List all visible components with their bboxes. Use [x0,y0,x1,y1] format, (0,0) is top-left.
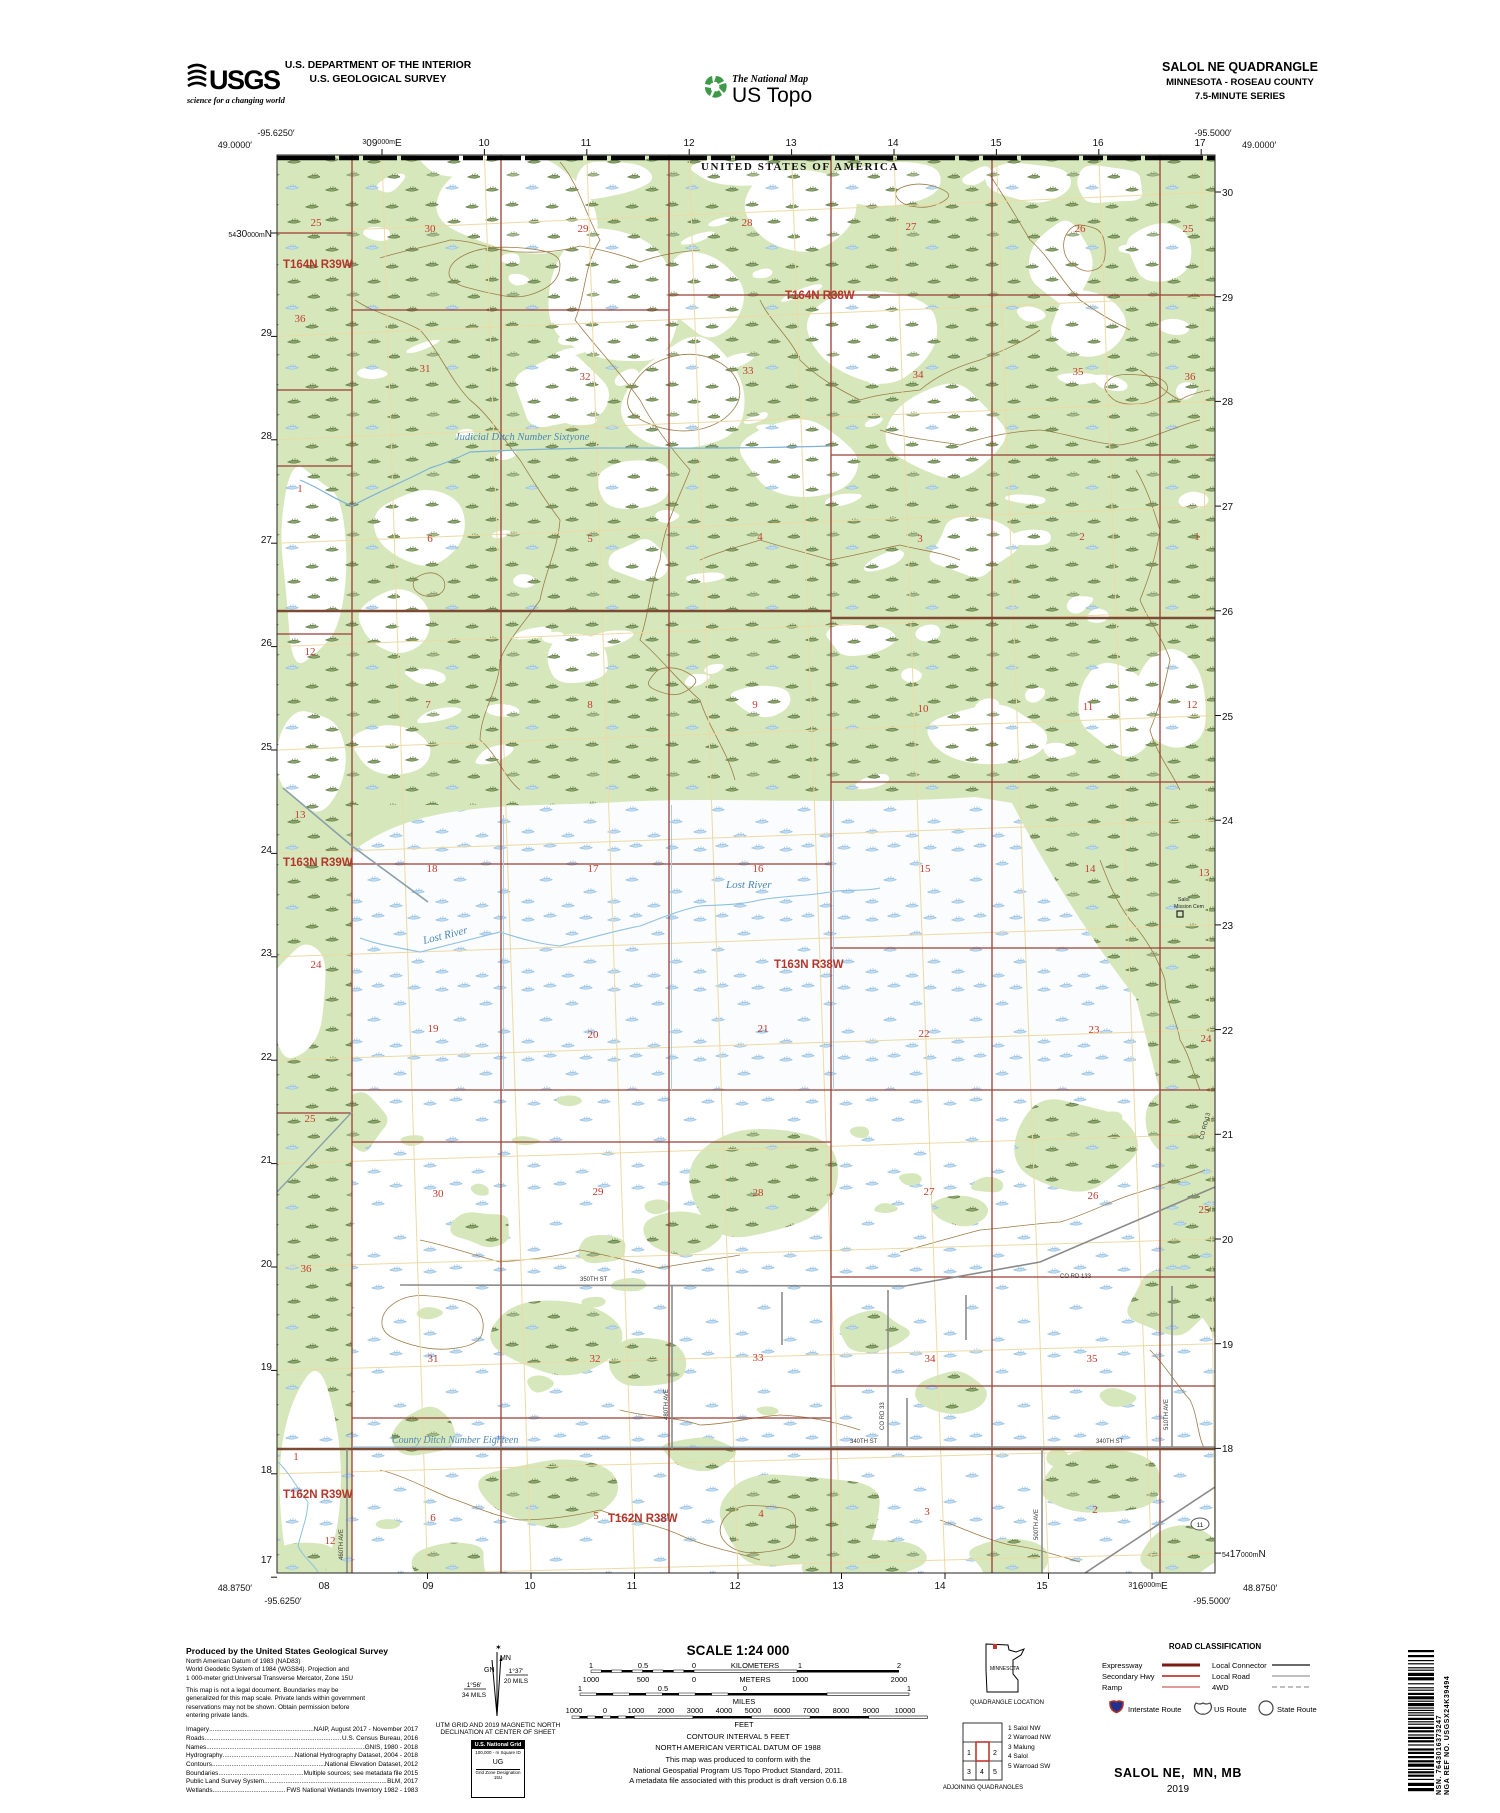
svg-text:25: 25 [305,1113,317,1125]
svg-text:15: 15 [1036,1581,1048,1592]
svg-text:15: 15 [990,138,1002,149]
svg-text:Ramp: Ramp [1102,1683,1122,1692]
svg-text:29: 29 [593,1186,605,1198]
svg-text:29: 29 [578,223,590,235]
svg-text:13: 13 [295,809,307,821]
svg-text:Expressway: Expressway [1102,1661,1143,1670]
svg-text:T163N R39W: T163N R39W [283,857,353,869]
svg-text:Lost River: Lost River [725,879,772,891]
svg-text:13: 13 [785,138,797,149]
svg-text:17: 17 [1194,138,1206,149]
svg-text:9000: 9000 [863,1706,880,1715]
svg-text:State Route: State Route [1277,1705,1317,1714]
svg-text:13: 13 [832,1581,844,1592]
svg-text:1°56′: 1°56′ [467,1681,482,1689]
svg-text:Local Connector: Local Connector [1212,1661,1267,1670]
svg-text:11: 11 [1197,1522,1204,1529]
svg-text:35: 35 [1073,366,1085,378]
svg-text:49.0000′: 49.0000′ [1242,140,1277,150]
svg-text:Mission Cem: Mission Cem [1174,904,1204,910]
svg-text:9: 9 [752,699,758,711]
svg-text:-95.5000′: -95.5000′ [1194,128,1232,138]
svg-text:18: 18 [261,1465,273,1476]
svg-text:21: 21 [1222,1130,1234,1141]
svg-text:30: 30 [433,1188,445,1200]
svg-text:1: 1 [589,1661,593,1670]
svg-text:MILES: MILES [733,1697,756,1706]
svg-text:29: 29 [261,328,273,339]
svg-text:25: 25 [1183,223,1195,235]
svg-text:460TH AVE: 460TH AVE [339,1529,345,1560]
svg-text:T164N R38W: T164N R38W [785,290,855,302]
svg-text:-95.5000′: -95.5000′ [1193,1596,1231,1606]
svg-text:350TH ST: 350TH ST [580,1277,608,1283]
svg-text:5430000mN: 5430000mN [228,229,272,240]
svg-text:48.8750′: 48.8750′ [1243,1583,1278,1593]
svg-text:25: 25 [261,742,273,753]
svg-text:21: 21 [758,1023,769,1035]
svg-text:25: 25 [1222,712,1234,723]
svg-text:33: 33 [743,365,755,377]
svg-text:1: 1 [1194,531,1200,543]
svg-text:27: 27 [261,535,273,546]
svg-text:5: 5 [587,533,593,545]
svg-text:36: 36 [301,1263,313,1275]
svg-text:25: 25 [1199,1204,1211,1216]
svg-text:10: 10 [918,703,930,715]
svg-text:5: 5 [593,1510,599,1522]
svg-text:27: 27 [906,221,918,233]
svg-text:3000: 3000 [687,1706,704,1715]
svg-text:11: 11 [1083,701,1094,713]
svg-text:1°37′: 1°37′ [509,1667,524,1675]
svg-text:6000: 6000 [774,1706,791,1715]
svg-text:20: 20 [1222,1235,1234,1246]
svg-text:0: 0 [603,1706,607,1715]
svg-text:2: 2 [897,1661,901,1670]
svg-text:15: 15 [920,863,932,875]
svg-text:23: 23 [261,948,273,959]
svg-text:2: 2 [1079,531,1085,543]
svg-text:16: 16 [753,863,765,875]
svg-text:19: 19 [1222,1340,1234,1351]
svg-text:19: 19 [428,1023,440,1035]
svg-text:22: 22 [919,1028,930,1040]
svg-text:27: 27 [1222,502,1234,513]
svg-text:Local Road: Local Road [1212,1672,1250,1681]
svg-text:8: 8 [587,699,593,711]
svg-text:12: 12 [305,646,316,658]
svg-text:0.5: 0.5 [658,1684,668,1693]
svg-text:METERS: METERS [739,1675,770,1684]
svg-text:12: 12 [683,138,695,149]
svg-text:28: 28 [742,217,754,229]
svg-text:24: 24 [1201,1033,1213,1045]
svg-text:34: 34 [913,369,925,381]
svg-text:17: 17 [588,863,600,875]
svg-text:34: 34 [925,1353,937,1365]
svg-text:10: 10 [478,138,490,149]
svg-text:31: 31 [428,1353,439,1365]
svg-text:MINNESOTA: MINNESOTA [990,1666,1020,1672]
svg-text:CO RD 133: CO RD 133 [1060,1274,1092,1280]
svg-text:1: 1 [578,1684,582,1693]
svg-text:24: 24 [261,845,273,856]
svg-text:49.0000′: 49.0000′ [218,140,253,150]
svg-text:KILOMETERS: KILOMETERS [731,1661,779,1670]
svg-text:26: 26 [1088,1190,1100,1202]
svg-text:12: 12 [325,1535,336,1547]
svg-text:26: 26 [1075,223,1087,235]
svg-text:24: 24 [1222,816,1234,827]
svg-text:35: 35 [1087,1353,1099,1365]
svg-text:20: 20 [588,1029,600,1041]
svg-text:GN: GN [484,1667,495,1674]
svg-text:UNITED STATES OF AMERICA: UNITED STATES OF AMERICA [701,161,899,173]
svg-text:23: 23 [1222,921,1234,932]
svg-text:4000: 4000 [716,1706,733,1715]
svg-text:30: 30 [1222,188,1234,199]
svg-text:340TH ST: 340TH ST [850,1439,878,1445]
svg-text:28: 28 [261,431,273,442]
svg-text:5417000mN: 5417000mN [1222,1549,1266,1560]
svg-text:21: 21 [261,1155,273,1166]
svg-text:3: 3 [967,1769,971,1776]
svg-text:14: 14 [1085,863,1097,875]
svg-text:1000: 1000 [566,1706,583,1715]
svg-text:19: 19 [261,1362,273,1373]
svg-text:20 MILS: 20 MILS [504,1678,529,1685]
svg-text:0: 0 [692,1661,696,1670]
svg-text:✶: ✶ [495,1643,502,1652]
svg-text:4: 4 [758,1508,764,1520]
svg-text:340TH ST: 340TH ST [1096,1439,1124,1445]
svg-text:316000mE: 316000mE [1128,1581,1168,1592]
svg-text:500: 500 [637,1675,650,1684]
svg-text:12: 12 [729,1581,741,1592]
svg-text:22: 22 [261,1052,273,1063]
svg-text:17: 17 [261,1555,273,1566]
svg-text:309000mE: 309000mE [362,138,402,149]
svg-text:480TH AVE: 480TH AVE [664,1389,670,1420]
svg-text:T162N R38W: T162N R38W [608,1513,678,1525]
svg-text:36: 36 [295,313,307,325]
svg-text:13: 13 [1199,867,1211,879]
svg-text:1: 1 [967,1750,971,1757]
svg-text:1000: 1000 [583,1675,600,1684]
svg-text:1000: 1000 [792,1675,809,1684]
svg-text:33: 33 [753,1352,765,1364]
svg-text:28: 28 [753,1187,765,1199]
svg-text:2: 2 [993,1750,997,1757]
svg-text:18: 18 [427,863,439,875]
svg-text:2000: 2000 [658,1706,675,1715]
svg-text:2000: 2000 [891,1675,908,1684]
svg-text:-95.6250′: -95.6250′ [264,1596,302,1606]
svg-text:0.5: 0.5 [638,1661,648,1670]
svg-text:4WD: 4WD [1212,1683,1229,1692]
svg-text:10: 10 [524,1581,536,1592]
svg-text:US Route: US Route [1214,1705,1247,1714]
svg-text:1: 1 [293,1451,299,1463]
svg-text:1: 1 [907,1684,911,1693]
svg-text:2: 2 [1092,1504,1098,1516]
svg-text:8000: 8000 [833,1706,850,1715]
svg-text:16: 16 [1092,138,1104,149]
svg-text:1: 1 [297,483,303,495]
svg-text:14: 14 [934,1581,946,1592]
svg-text:T164N R39W: T164N R39W [283,259,353,271]
svg-text:T162N R39W: T162N R39W [283,1489,353,1501]
svg-text:08: 08 [318,1581,330,1592]
svg-text:22: 22 [1222,1026,1234,1037]
svg-text:Secondary Hwy: Secondary Hwy [1102,1672,1155,1681]
svg-text:32: 32 [590,1353,601,1365]
svg-text:4: 4 [757,531,763,543]
svg-text:11: 11 [627,1581,638,1592]
svg-text:-95.6250′: -95.6250′ [257,128,295,138]
svg-text:7: 7 [425,699,431,711]
svg-text:25: 25 [311,217,323,229]
svg-text:Salol: Salol [1178,897,1190,903]
svg-text:CO RD 33: CO RD 33 [880,1402,886,1430]
svg-text:27: 27 [924,1186,936,1198]
svg-text:12: 12 [1187,699,1198,711]
svg-text:3: 3 [924,1506,930,1518]
svg-text:14: 14 [887,138,899,149]
svg-text:31: 31 [420,363,431,375]
svg-text:10000: 10000 [895,1706,916,1715]
svg-text:1000: 1000 [628,1706,645,1715]
svg-text:24: 24 [311,959,323,971]
svg-text:09: 09 [422,1581,434,1592]
svg-text:34 MILS: 34 MILS [462,1692,487,1699]
svg-text:0: 0 [692,1675,696,1684]
svg-text:6: 6 [430,1512,436,1524]
svg-text:510TH AVE: 510TH AVE [1164,1399,1170,1430]
svg-text:3: 3 [917,533,923,545]
svg-text:18: 18 [1222,1444,1234,1455]
svg-text:County Ditch Number Eighteen: County Ditch Number Eighteen [392,1435,518,1446]
svg-text:7000: 7000 [803,1706,820,1715]
svg-text:48.8750′: 48.8750′ [218,1583,253,1593]
svg-text:5: 5 [993,1769,997,1776]
svg-text:FEET: FEET [734,1720,754,1729]
svg-text:23: 23 [1089,1024,1101,1036]
svg-text:26: 26 [1222,607,1234,618]
svg-text:4: 4 [980,1769,984,1776]
svg-text:20: 20 [261,1259,273,1270]
svg-text:Interstate Route: Interstate Route [1128,1705,1181,1714]
svg-text:5000: 5000 [745,1706,762,1715]
svg-text:11: 11 [581,138,592,149]
svg-text:29: 29 [1222,293,1234,304]
svg-text:28: 28 [1222,397,1234,408]
svg-text:36: 36 [1185,371,1197,383]
svg-text:Judicial Ditch Number Sixtyone: Judicial Ditch Number Sixtyone [455,432,590,443]
svg-text:30: 30 [425,223,437,235]
svg-text:32: 32 [580,371,591,383]
svg-text:6: 6 [427,533,433,545]
svg-text:0: 0 [743,1684,747,1693]
svg-text:1: 1 [798,1661,802,1670]
svg-text:26: 26 [261,638,273,649]
svg-text:500TH AVE: 500TH AVE [1034,1509,1040,1540]
svg-text:T163N R38W: T163N R38W [774,959,844,971]
